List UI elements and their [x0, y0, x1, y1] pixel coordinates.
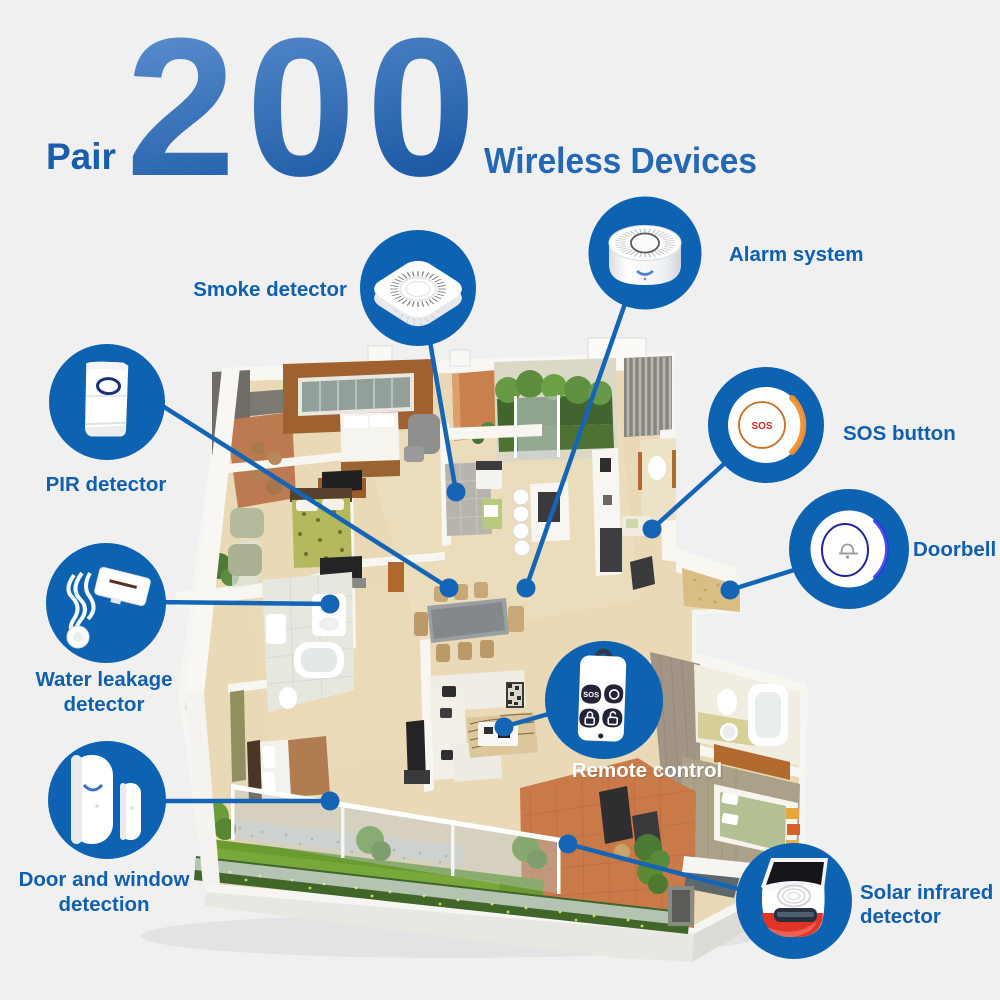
svg-text:Doorbell: Doorbell: [913, 538, 996, 561]
svg-text:Solar infrared: Solar infrared: [860, 881, 993, 904]
svg-text:detection: detection: [58, 893, 149, 916]
svg-text:PIR detector: PIR detector: [46, 473, 167, 496]
svg-text:Water leakage: Water leakage: [35, 668, 172, 691]
svg-text:detector: detector: [860, 905, 941, 928]
svg-text:Alarm system: Alarm system: [729, 243, 863, 266]
svg-text:200: 200: [126, 0, 476, 217]
svg-text:Door and window: Door and window: [19, 868, 190, 891]
svg-text:SOS: SOS: [751, 421, 772, 432]
svg-text:Pair: Pair: [46, 136, 116, 177]
svg-text:Remote control: Remote control: [572, 759, 722, 782]
svg-text:Smoke detector: Smoke detector: [193, 278, 347, 301]
svg-text:SOS button: SOS button: [843, 422, 956, 445]
svg-text:detector: detector: [64, 693, 145, 716]
svg-text:SOS: SOS: [583, 690, 599, 700]
svg-text:Wireless Devices: Wireless Devices: [484, 140, 757, 181]
